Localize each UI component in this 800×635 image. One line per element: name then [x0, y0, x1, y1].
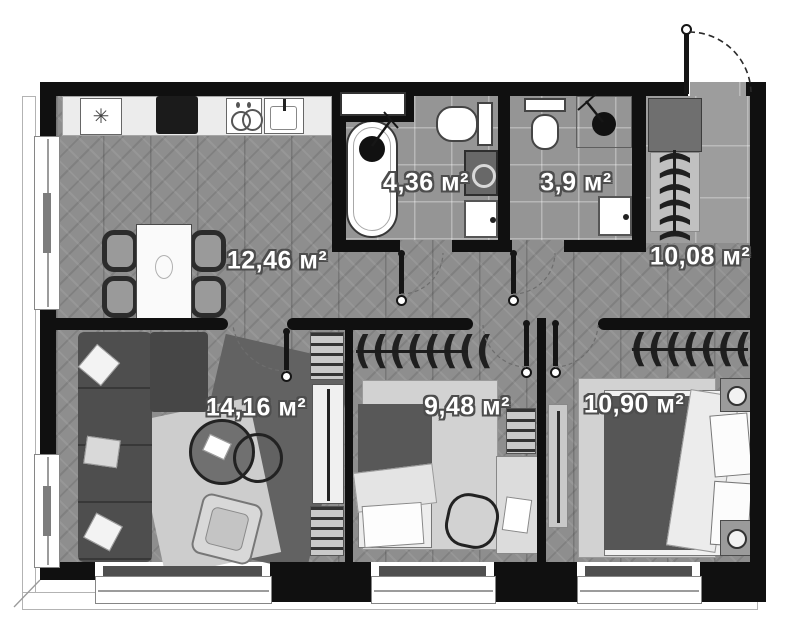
door-knob	[550, 367, 561, 378]
window	[34, 454, 60, 568]
hanger-rail	[632, 348, 748, 351]
sofa-pillow	[83, 436, 121, 468]
area-label-bedroom-master: 10,90 м²	[584, 391, 684, 420]
window-sill	[585, 566, 692, 576]
wall-left	[40, 82, 56, 136]
door-hinge	[283, 328, 290, 335]
wall-corridor-north	[332, 240, 400, 252]
wall-bedroom-bedroom	[537, 318, 546, 562]
door-knob	[681, 24, 692, 35]
door-leaf	[284, 330, 289, 370]
sink-bowl-icon	[242, 109, 263, 131]
sofa-chaise	[150, 332, 208, 412]
entrance-threshold	[690, 82, 746, 96]
entrance-door-leaf	[684, 28, 689, 94]
shower-head-icon	[592, 112, 616, 136]
wall-bottom-pier	[270, 562, 371, 602]
door-leaf	[524, 322, 529, 366]
kitchen-prep-sink	[226, 98, 262, 134]
notebook	[502, 496, 532, 533]
coffee-table	[233, 433, 283, 483]
hanger-rail	[673, 150, 676, 234]
wall-bath-hall	[632, 96, 646, 246]
window	[371, 576, 496, 604]
window-handle	[43, 486, 51, 536]
shower-head-icon	[359, 136, 385, 162]
shelf-unit	[310, 332, 344, 380]
wall-bottom-pier	[494, 562, 577, 602]
pillow	[362, 502, 425, 548]
desk-shelf	[506, 408, 536, 454]
wardrobe-rail	[327, 389, 330, 501]
area-label-kitchen-living: 12,46 м²	[227, 247, 327, 276]
wall-corridor-south	[598, 318, 766, 330]
table-plant-icon	[155, 255, 173, 279]
stove	[156, 96, 198, 134]
window-frame	[580, 590, 699, 592]
tap-icon	[623, 214, 629, 220]
bathroom-sink	[598, 196, 632, 236]
area-label-bathroom-main: 4,36 м²	[383, 169, 469, 198]
toilet-tank	[524, 98, 566, 112]
window	[577, 576, 702, 604]
kitchen-sink	[264, 98, 304, 134]
door-knob	[508, 295, 519, 306]
wall-kitchen-bath	[332, 96, 346, 252]
shelf-unit	[310, 506, 344, 556]
pillow	[709, 412, 752, 477]
door-knob	[521, 367, 532, 378]
washer-drum-icon	[472, 164, 496, 188]
wall-right	[750, 82, 766, 602]
area-label-living-room: 14,16 м²	[206, 394, 306, 423]
window-frame	[374, 590, 493, 592]
toilet-tank	[477, 102, 493, 146]
bathroom-sink	[464, 200, 498, 238]
door-knob	[396, 295, 407, 306]
wall-bath-bath	[498, 96, 510, 252]
chair	[190, 276, 226, 318]
closet-shelf	[648, 98, 702, 152]
toilet	[436, 106, 478, 142]
chair	[190, 230, 226, 272]
window-sill	[103, 566, 262, 576]
mirror-panel	[548, 404, 568, 528]
wall-corridor-north	[564, 240, 646, 252]
lamp-icon	[727, 386, 747, 406]
window	[34, 136, 60, 310]
armchair-seat	[204, 506, 250, 552]
window	[95, 576, 272, 604]
lamp-icon	[727, 529, 747, 549]
fridge: ✳	[80, 98, 122, 135]
vent-shaft-inset	[340, 92, 406, 116]
area-label-hallway: 10,08 м²	[650, 243, 750, 272]
wall-corridor-north	[452, 240, 512, 252]
wardrobe	[312, 384, 344, 504]
area-label-bathroom-guest: 3,9 м²	[540, 169, 612, 198]
door-leaf	[511, 252, 516, 294]
wall-living-bedroom	[345, 318, 353, 562]
chair	[102, 276, 138, 318]
floor-plan: ✳ ((((((	[0, 0, 800, 635]
chair	[102, 230, 138, 272]
door-leaf	[399, 252, 404, 294]
nightstand	[720, 378, 752, 412]
door-hinge	[552, 320, 559, 327]
faucet-icon	[283, 99, 286, 111]
droplet-icon	[236, 102, 240, 108]
washing-machine	[464, 150, 498, 196]
door-hinge	[398, 250, 405, 257]
door-hinge	[523, 320, 530, 327]
snowflake-icon: ✳	[93, 104, 110, 129]
door-leaf	[553, 322, 558, 366]
mirror-line	[557, 411, 560, 523]
window-handle	[43, 193, 51, 253]
droplet-icon	[247, 102, 251, 108]
wall-corridor-south	[40, 318, 228, 330]
nightstand	[720, 520, 752, 556]
window-sill	[379, 566, 486, 576]
door-knob	[281, 371, 292, 382]
wall-bottom-pier	[700, 562, 766, 602]
hanger-rail	[356, 350, 468, 353]
dining-table	[136, 224, 192, 320]
window-frame	[98, 590, 269, 592]
tap-icon	[490, 217, 496, 223]
door-hinge	[510, 250, 517, 257]
wall-corridor-south	[287, 318, 473, 330]
area-label-bedroom-small: 9,48 м²	[424, 393, 510, 422]
toilet	[531, 114, 559, 150]
